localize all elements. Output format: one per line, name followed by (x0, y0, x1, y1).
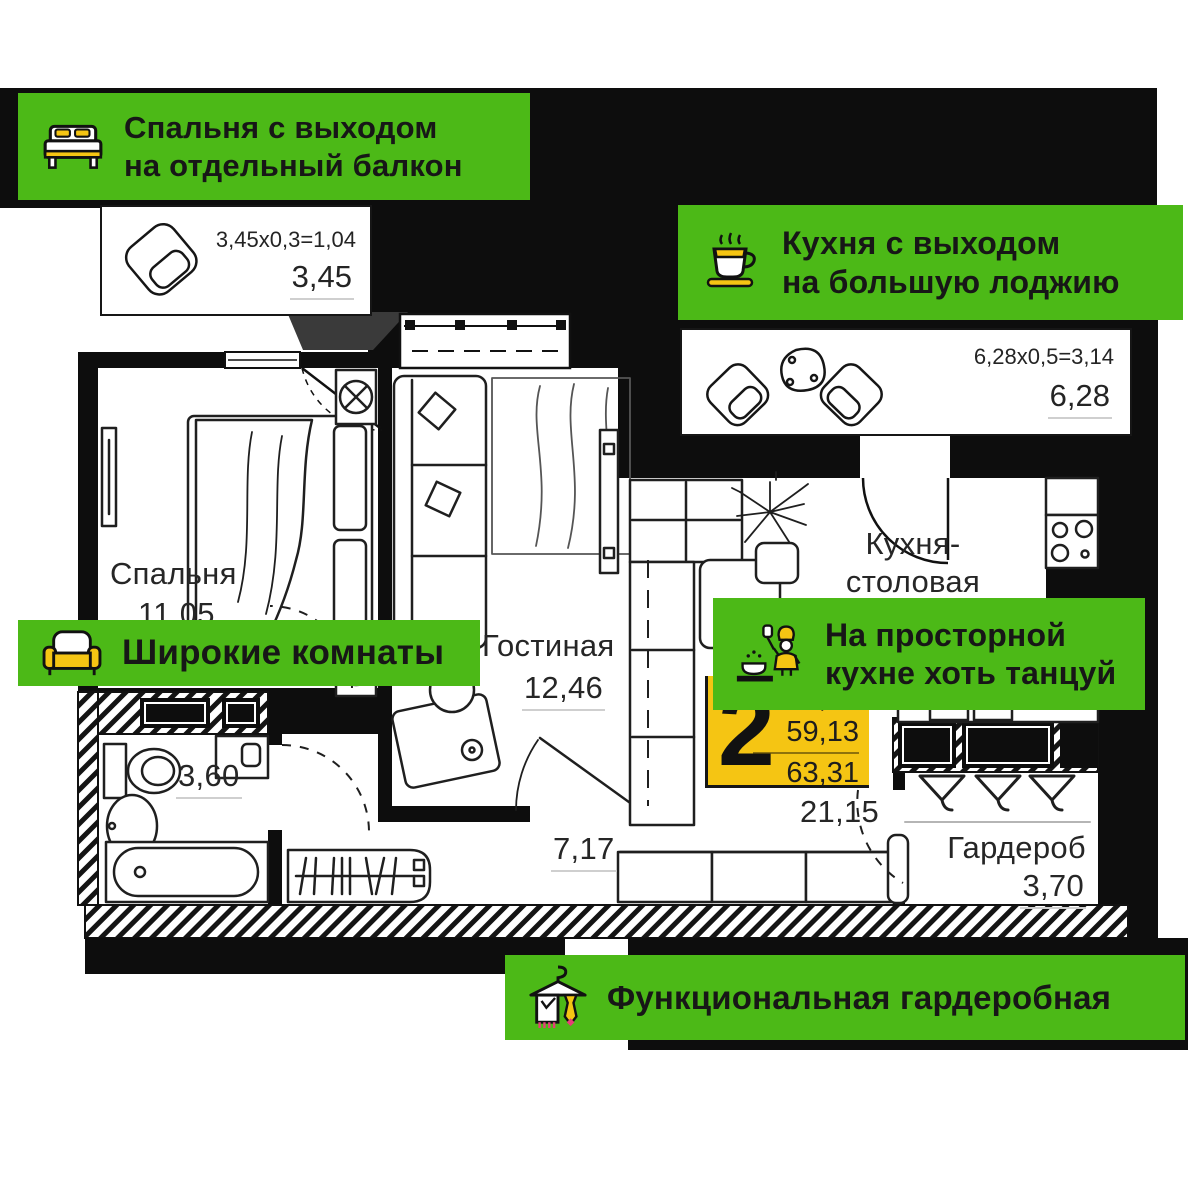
banner-text: Широкие комнаты (122, 632, 444, 674)
plant (732, 472, 808, 548)
living-area: 12,46 (522, 670, 605, 706)
nightstand (336, 370, 376, 424)
bedroom-balcony-box: 3,45x0,3=1,04 3,45 (100, 205, 372, 316)
banner-bedroom-balcony: Спальня с выходом на отдельный балкон (18, 93, 530, 200)
shadow (85, 938, 565, 974)
banner-text: Функциональная гардеробная (607, 978, 1111, 1018)
banner-kitchen-loggia: Кухня с выходом на большую лоджию (678, 205, 1183, 320)
toilet (104, 744, 180, 798)
sofa-icon (40, 626, 104, 680)
bedroom-label: Спальня (110, 556, 237, 592)
banner-wide-rooms: Широкие комнаты (18, 620, 480, 686)
sofa-living (394, 376, 486, 648)
bathroom-area: 3,60 (176, 758, 242, 794)
balcony-area: 3,45 (290, 259, 354, 295)
loggia-dimensions: 6,28x0,5=3,14 (974, 344, 1114, 370)
tv-bedroom (102, 428, 116, 526)
kitchen-label-line1: Кухня- (828, 526, 998, 562)
loggia-area: 6,28 (1048, 378, 1112, 414)
floor-area-value: 59,13 (753, 715, 859, 749)
living-label: Гостиная (482, 628, 615, 664)
bed-icon (40, 118, 106, 176)
hanger-icon (527, 964, 589, 1032)
stove (1046, 478, 1098, 568)
floor-plan-page: 3,45x0,3=1,04 3,45 6,28x0,5=3,14 6,28 Сп… (0, 0, 1200, 1182)
living-door (516, 738, 640, 810)
kitchen-label-line2: столовая (828, 564, 998, 600)
banner-text: Кухня с выходом на большую лоджию (782, 224, 1120, 301)
armchair-icon (116, 217, 212, 305)
chef-icon (735, 623, 807, 685)
tv-living (600, 430, 618, 573)
wardrobe-label: Гардероб (926, 830, 1086, 866)
coat-rack (288, 850, 430, 902)
wardrobe-hangers (920, 776, 1074, 810)
total-area-value: 63,31 (753, 756, 859, 790)
banner-text: На просторной кухне хоть танцуй (825, 616, 1116, 693)
desk-chair (391, 668, 501, 789)
bathtub (106, 842, 268, 902)
banner-text: Спальня с выходом на отдельный балкон (124, 109, 463, 183)
banner-spacious-kitchen: На просторной кухне хоть танцуй (713, 598, 1145, 710)
kitchen-area: 21,15 (800, 794, 879, 830)
kitchen-bottom-sofa (618, 835, 908, 903)
bed (188, 416, 372, 650)
hallway-area: 7,17 (551, 831, 617, 867)
balcony-dimensions: 3,45x0,3=1,04 (216, 227, 356, 253)
window-bay (400, 314, 570, 368)
kitchen-loggia-box: 6,28x0,5=3,14 6,28 (680, 328, 1132, 436)
coffee-cup-icon (700, 231, 764, 295)
banner-functional-wardrobe: Функциональная гардеробная (505, 955, 1185, 1040)
wardrobe-area: 3,70 (926, 868, 1086, 904)
loggia-furniture-icon (692, 338, 902, 430)
badge-divider (753, 752, 859, 754)
